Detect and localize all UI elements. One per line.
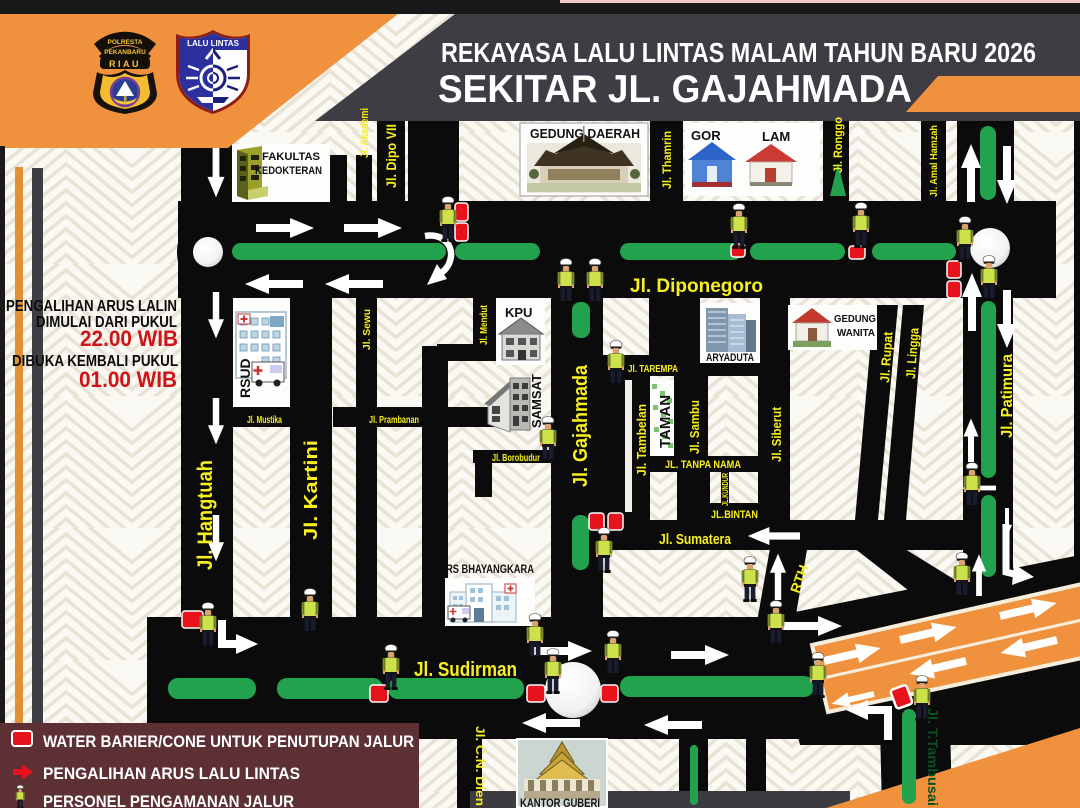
svg-text:Jl. Hangtuah: Jl. Hangtuah [194,460,217,570]
svg-text:LALU LINTAS: LALU LINTAS [187,39,240,48]
svg-text:Jl. Akademi: Jl. Akademi [359,108,371,158]
svg-text:Jl. Sumatera: Jl. Sumatera [659,531,732,548]
svg-text:JL.KUNDUR: JL.KUNDUR [721,473,730,506]
svg-text:Jl. Sudirman: Jl. Sudirman [414,659,517,681]
svg-text:Jl. Borobudur: Jl. Borobudur [492,453,540,464]
svg-text:PEKANBARU: PEKANBARU [104,49,146,56]
svg-text:KANTOR GUBERI: KANTOR GUBERI [520,796,600,808]
svg-text:Jl. T.Tambusai: Jl. T.Tambusai [925,708,941,806]
svg-text:RS BHAYANGKARA: RS BHAYANGKARA [446,562,534,576]
svg-text:RIAU: RIAU [109,59,141,69]
svg-text:POLRESTA: POLRESTA [108,39,143,46]
svg-text:Jl. Sewu: Jl. Sewu [362,309,373,350]
svg-text:Jl. Thamrin: Jl. Thamrin [660,131,674,189]
svg-text:KPU: KPU [505,305,532,320]
svg-text:LAM: LAM [762,129,790,144]
svg-text:KEDOKTERAN: KEDOKTERAN [255,165,322,177]
svg-text:GEDUNG: GEDUNG [834,314,876,325]
svg-text:Jl. Diponegoro: Jl. Diponegoro [630,276,763,297]
svg-text:Jl. Patimura: Jl. Patimura [999,354,1016,438]
svg-text:SAMSAT: SAMSAT [529,374,544,428]
svg-text:Jl. Gajahmada: Jl. Gajahmada [570,364,592,487]
svg-text:ARYADUTA: ARYADUTA [706,352,754,364]
svg-text:Jl. Dipo VII: Jl. Dipo VII [383,124,399,188]
svg-text:Jl. Mustika: Jl. Mustika [247,415,282,426]
svg-text:Jl. Sambu: Jl. Sambu [687,400,702,454]
svg-text:WATER BARIER/CONE UNTUK PENUTU: WATER BARIER/CONE UNTUK PENUTUPAN JALUR [43,732,414,751]
svg-text:22.00 WIB: 22.00 WIB [80,326,178,351]
svg-text:SEKITAR JL. GAJAHMADA: SEKITAR JL. GAJAHMADA [438,68,912,111]
svg-text:Jl. C.N. Dien: Jl. C.N. Dien [473,726,487,806]
svg-text:JL.BINTAN: JL.BINTAN [711,509,758,521]
svg-text:Jl. TAREMPA: Jl. TAREMPA [628,364,678,375]
svg-text:Jl. Mendut: Jl. Mendut [479,304,490,345]
svg-text:Jl. Kartini: Jl. Kartini [301,440,321,540]
svg-text:Jl. Tambelan: Jl. Tambelan [634,404,649,476]
svg-text:Jl. Ronggo: Jl. Ronggo [831,117,845,173]
svg-text:01.00 WIB: 01.00 WIB [79,367,177,392]
svg-text:GOR: GOR [691,128,721,143]
svg-text:PENGALIHAN ARUS LALIN: PENGALIHAN ARUS LALIN [6,298,177,315]
svg-text:FAKULTAS: FAKULTAS [262,151,320,163]
svg-text:RSUD: RSUD [237,358,253,398]
svg-text:Jl. Siberut: Jl. Siberut [769,406,784,462]
svg-text:WANITA: WANITA [837,328,875,339]
svg-text:REKAYASA LALU LINTAS MALAM TAH: REKAYASA LALU LINTAS MALAM TAHUN BARU 20… [441,37,1036,68]
svg-text:JL. TANPA NAMA: JL. TANPA NAMA [665,459,741,471]
svg-text:Jl. Amal Hamzah: Jl. Amal Hamzah [929,125,940,197]
svg-text:PENGALIHAN ARUS LALU LINTAS: PENGALIHAN ARUS LALU LINTAS [43,764,300,783]
svg-text:PERSONEL PENGAMANAN JALUR: PERSONEL PENGAMANAN JALUR [43,792,294,808]
svg-text:TAMAN: TAMAN [657,395,674,448]
svg-text:Jl. Prambanan: Jl. Prambanan [369,415,419,426]
